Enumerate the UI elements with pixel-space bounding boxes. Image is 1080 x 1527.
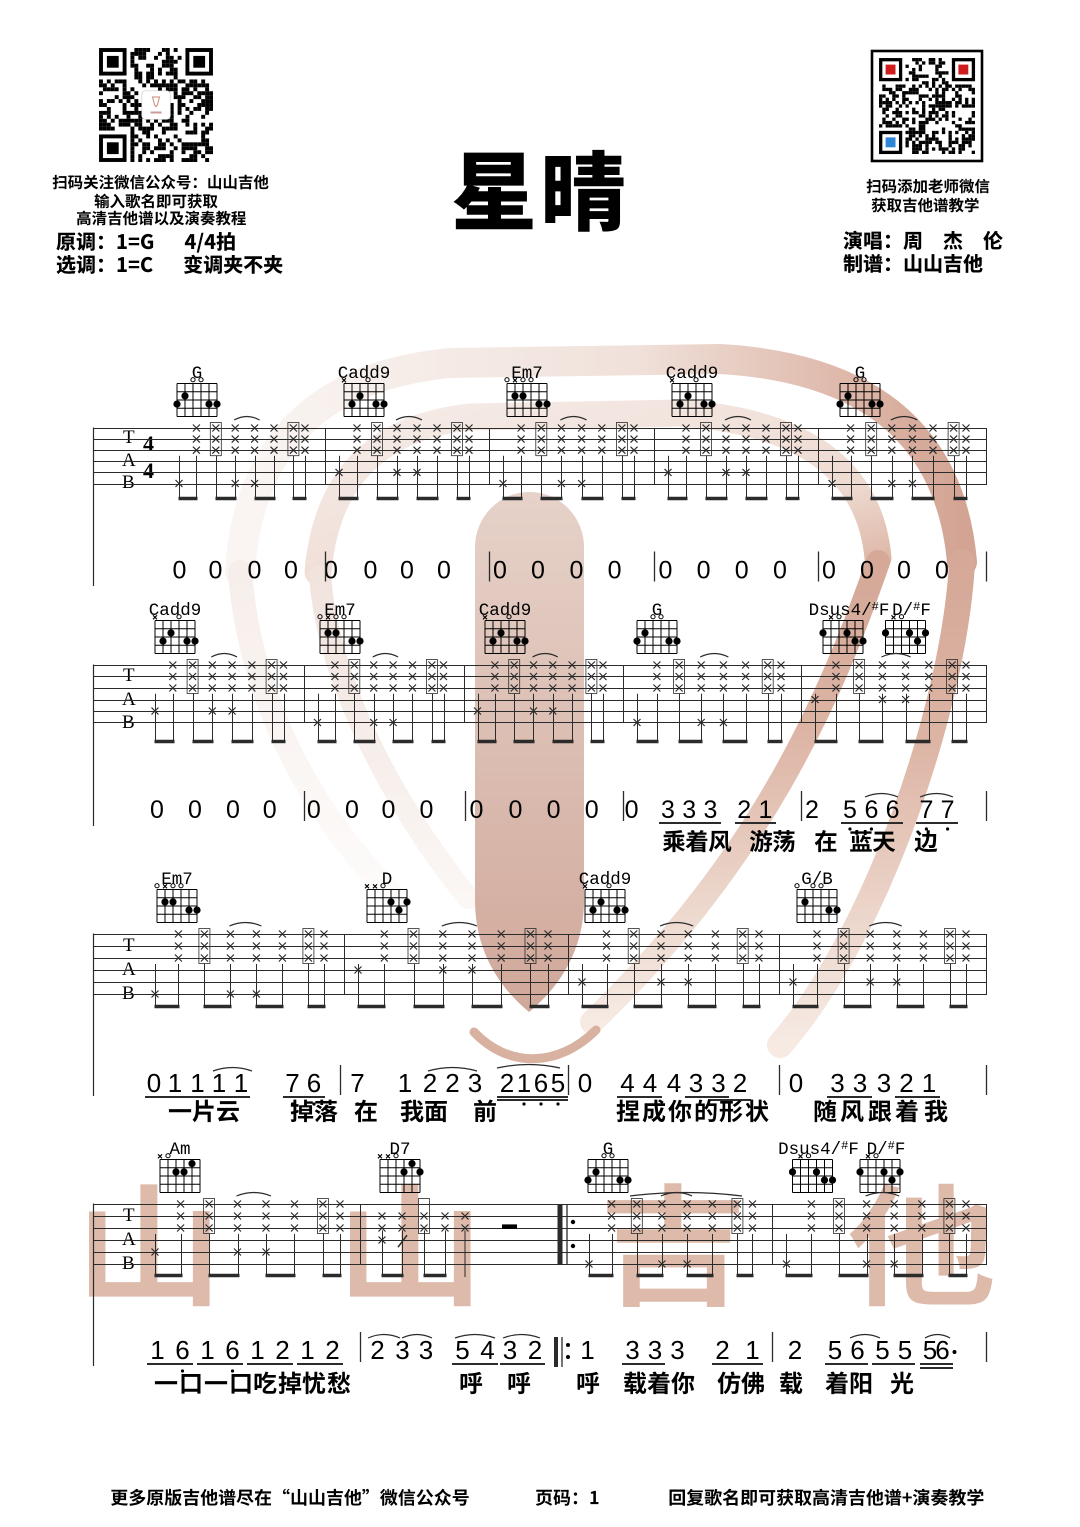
svg-text:T: T: [123, 665, 135, 686]
svg-text:0: 0: [437, 557, 451, 585]
svg-text:0: 0: [897, 557, 911, 585]
svg-text:1: 1: [300, 1335, 314, 1365]
svg-text:B: B: [122, 1253, 135, 1274]
svg-text:1: 1: [517, 1068, 531, 1098]
svg-text:G: G: [603, 1140, 614, 1160]
svg-text:0: 0: [284, 557, 298, 585]
svg-text:T: T: [123, 1205, 135, 1226]
svg-text:0: 0: [508, 796, 522, 824]
svg-text:6: 6: [886, 796, 900, 824]
svg-text:5: 5: [898, 1335, 912, 1365]
svg-text:Cadd9: Cadd9: [666, 364, 719, 384]
svg-text:Cadd9: Cadd9: [479, 601, 532, 621]
svg-text:Cadd9: Cadd9: [338, 364, 391, 384]
svg-text:0: 0: [531, 557, 545, 585]
svg-text:3: 3: [670, 1335, 684, 1365]
svg-text:0: 0: [822, 557, 836, 585]
svg-text:0: 0: [625, 796, 639, 824]
svg-text:3: 3: [395, 1335, 409, 1365]
svg-text:4: 4: [620, 1068, 634, 1098]
svg-text:1: 1: [168, 1068, 182, 1098]
svg-text:0: 0: [188, 796, 202, 824]
svg-text:0: 0: [608, 557, 622, 585]
svg-text:0: 0: [493, 557, 507, 585]
svg-text:G: G: [192, 364, 203, 384]
svg-text:3: 3: [625, 1335, 639, 1365]
svg-text:1: 1: [234, 1068, 248, 1098]
svg-text:0: 0: [381, 796, 395, 824]
svg-text:0: 0: [570, 557, 584, 585]
svg-text:3: 3: [419, 1335, 433, 1365]
svg-text:0: 0: [173, 557, 187, 585]
svg-text:Em7: Em7: [324, 601, 356, 621]
svg-text:1: 1: [580, 1335, 594, 1365]
svg-text:T: T: [123, 427, 135, 448]
svg-text:6: 6: [225, 1335, 239, 1365]
svg-text:2: 2: [788, 1335, 802, 1365]
svg-text:0: 0: [547, 796, 561, 824]
svg-text:Em7: Em7: [161, 870, 193, 890]
svg-text:7: 7: [285, 1068, 299, 1098]
svg-text:3: 3: [468, 1068, 482, 1098]
svg-text:4: 4: [143, 431, 154, 456]
svg-text:Cadd9: Cadd9: [579, 870, 632, 890]
svg-text:3: 3: [682, 796, 696, 824]
svg-text:G: G: [855, 364, 866, 384]
svg-text:2: 2: [715, 1335, 729, 1365]
svg-text:7: 7: [919, 796, 933, 824]
svg-text:1: 1: [200, 1335, 214, 1365]
svg-text:5: 5: [875, 1335, 889, 1365]
svg-text:Dsus4/#F: Dsus4/#F: [809, 600, 890, 621]
svg-text:6: 6: [935, 1335, 949, 1365]
svg-text:5: 5: [843, 796, 857, 824]
svg-text:0: 0: [226, 796, 240, 824]
svg-text:0: 0: [400, 557, 414, 585]
svg-text:4: 4: [667, 1068, 681, 1098]
svg-text:3: 3: [711, 1068, 725, 1098]
svg-text:6: 6: [864, 796, 878, 824]
svg-text:6: 6: [307, 1068, 321, 1098]
svg-text:Dsus4/#F: Dsus4/#F: [778, 1139, 859, 1160]
svg-text:0: 0: [659, 557, 673, 585]
svg-text:D7: D7: [389, 1140, 410, 1160]
svg-text:0: 0: [773, 557, 787, 585]
svg-text:2: 2: [899, 1068, 913, 1098]
svg-text:1: 1: [150, 1335, 164, 1365]
svg-text:7: 7: [941, 796, 955, 824]
svg-text:Am: Am: [169, 1140, 190, 1160]
svg-text:0: 0: [248, 557, 262, 585]
svg-text:B: B: [122, 472, 135, 493]
svg-text:2: 2: [370, 1335, 384, 1365]
svg-text:1: 1: [250, 1335, 264, 1365]
svg-text:0: 0: [860, 557, 874, 585]
svg-text:D/#F: D/#F: [892, 600, 931, 621]
svg-text:0: 0: [697, 557, 711, 585]
svg-text:3: 3: [703, 796, 717, 824]
svg-text:5: 5: [828, 1335, 842, 1365]
svg-text:1: 1: [758, 796, 772, 824]
svg-text:3: 3: [648, 1335, 662, 1365]
svg-text:0: 0: [469, 796, 483, 824]
svg-text:2: 2: [733, 1068, 747, 1098]
svg-text:A: A: [122, 959, 136, 980]
svg-text:2: 2: [275, 1335, 289, 1365]
svg-text:2: 2: [528, 1335, 542, 1365]
svg-text:0: 0: [209, 557, 223, 585]
svg-text:Cadd9: Cadd9: [149, 601, 202, 621]
svg-text:3: 3: [877, 1068, 891, 1098]
svg-text:D: D: [382, 870, 393, 890]
svg-text:0: 0: [364, 557, 378, 585]
svg-text:2: 2: [325, 1335, 339, 1365]
svg-text:G: G: [652, 601, 663, 621]
svg-text:0: 0: [263, 796, 277, 824]
svg-text:B: B: [122, 983, 135, 1004]
svg-text:2: 2: [737, 796, 751, 824]
svg-text:T: T: [123, 935, 135, 956]
svg-text:1: 1: [922, 1068, 936, 1098]
svg-text:5: 5: [551, 1068, 565, 1098]
svg-text:Em7: Em7: [511, 364, 543, 384]
svg-text:4: 4: [480, 1335, 494, 1365]
svg-text:4: 4: [643, 1068, 657, 1098]
svg-text:3: 3: [661, 796, 675, 824]
svg-text:5: 5: [455, 1335, 469, 1365]
svg-text:6: 6: [175, 1335, 189, 1365]
svg-text:G/B: G/B: [801, 870, 833, 890]
svg-text:2: 2: [423, 1068, 437, 1098]
svg-text:0: 0: [789, 1068, 803, 1098]
svg-text:0: 0: [150, 796, 164, 824]
svg-text:0: 0: [307, 796, 321, 824]
svg-text:3: 3: [503, 1335, 517, 1365]
svg-text:2: 2: [500, 1068, 514, 1098]
svg-text:6: 6: [534, 1068, 548, 1098]
svg-text:A: A: [122, 1229, 136, 1250]
svg-text:D/#F: D/#F: [867, 1139, 906, 1160]
svg-text:0: 0: [735, 557, 749, 585]
svg-text:6: 6: [850, 1335, 864, 1365]
svg-text:3: 3: [830, 1068, 844, 1098]
svg-text:2: 2: [445, 1068, 459, 1098]
svg-text:0: 0: [420, 796, 434, 824]
svg-text:A: A: [122, 689, 136, 710]
svg-text:1: 1: [190, 1068, 204, 1098]
svg-text:1: 1: [398, 1068, 412, 1098]
svg-text:7: 7: [350, 1068, 364, 1098]
svg-text:2: 2: [805, 796, 819, 824]
svg-text:A: A: [122, 450, 136, 471]
svg-text:0: 0: [935, 557, 949, 585]
svg-text:3: 3: [689, 1068, 703, 1098]
svg-text:1: 1: [212, 1068, 226, 1098]
svg-text:0: 0: [147, 1068, 161, 1098]
svg-text:0: 0: [345, 796, 359, 824]
svg-text:0: 0: [585, 796, 599, 824]
svg-text:3: 3: [853, 1068, 867, 1098]
svg-text:1: 1: [745, 1335, 759, 1365]
svg-text:0: 0: [578, 1068, 592, 1098]
